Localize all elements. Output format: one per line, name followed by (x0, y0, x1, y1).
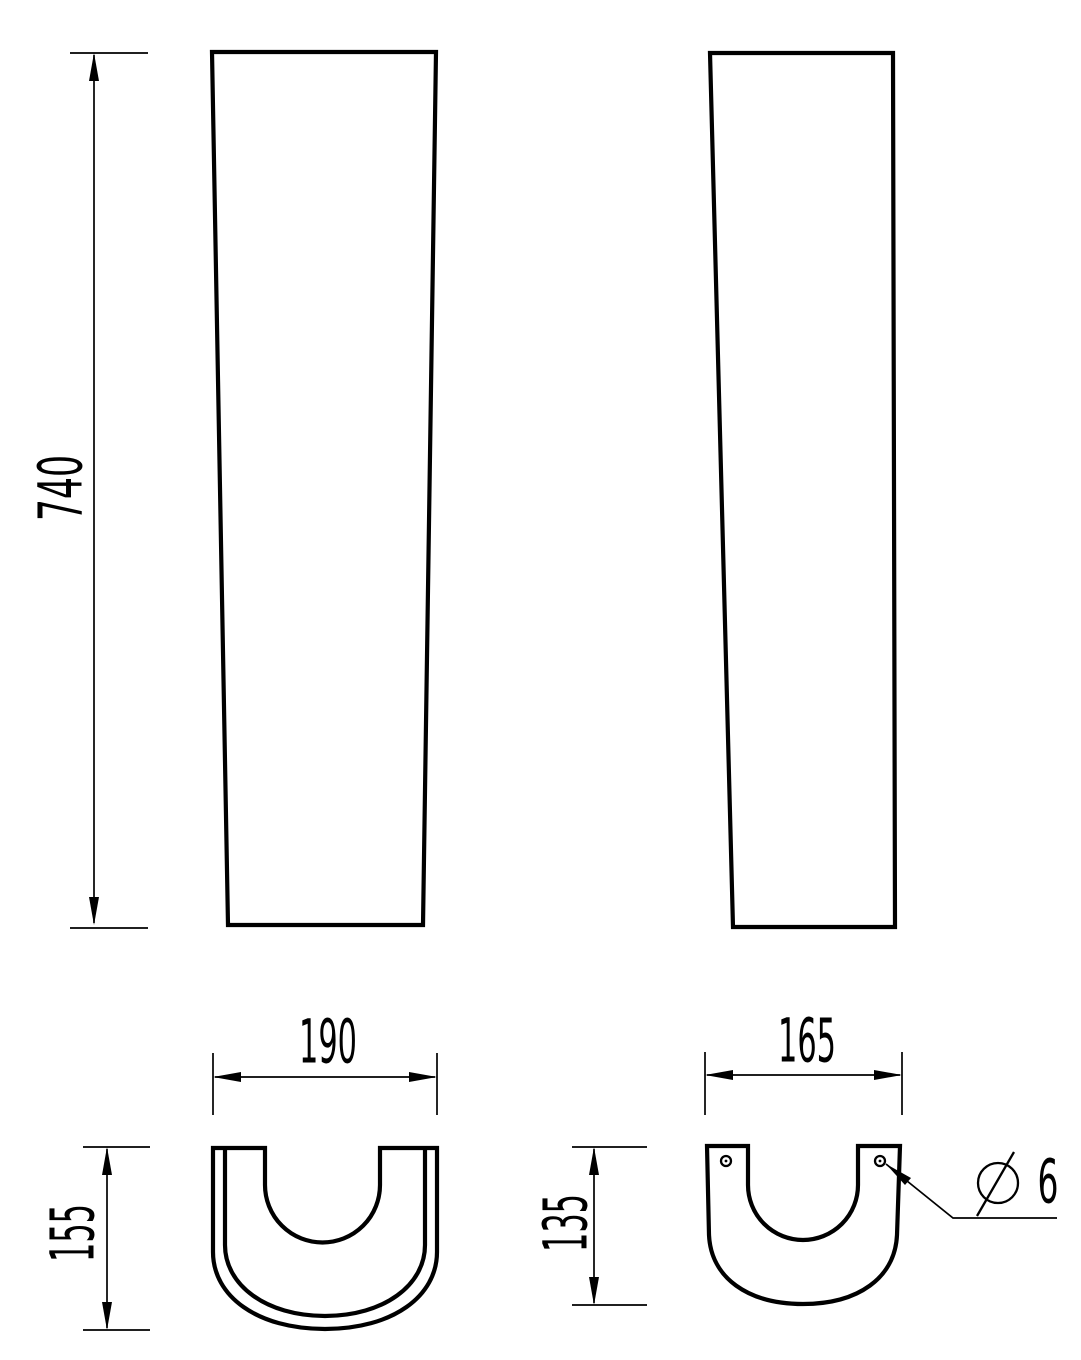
fixing-hole-left-center (725, 1160, 728, 1163)
pedestal-side-section-view (707, 1146, 900, 1304)
arrowhead-down (589, 1277, 599, 1305)
diameter-symbol-circle (978, 1163, 1018, 1203)
arrowhead-up (102, 1147, 112, 1175)
diameter-symbol-icon (977, 1152, 1018, 1216)
pedestal-side-elevation (710, 53, 895, 927)
height-dimension: 740 (26, 53, 149, 928)
arrowhead-left (705, 1070, 733, 1080)
pedestal-technical-drawing: 740 190 155 (0, 0, 1081, 1360)
hole-diameter-label: 6 (1038, 1147, 1059, 1218)
arrowhead-left (213, 1072, 241, 1082)
arrowhead-up (89, 53, 99, 81)
arrowhead-down (89, 897, 99, 925)
front-section-outer-outline (213, 1148, 437, 1329)
pedestal-front-elevation (212, 52, 436, 925)
leader-line (886, 1164, 1057, 1218)
height-dimension-label: 740 (26, 455, 97, 521)
hole-diameter-callout: 6 (886, 1147, 1059, 1219)
front-width-dimension: 190 (213, 1007, 437, 1116)
side-depth-dimension: 135 (531, 1147, 648, 1305)
front-depth-dimension-label: 155 (38, 1204, 109, 1262)
side-section-outer-outline (707, 1146, 900, 1304)
diameter-symbol-slash (977, 1152, 1014, 1216)
pedestal-front-section-view (213, 1148, 437, 1329)
fixing-hole-right-center (879, 1160, 882, 1163)
side-width-dimension: 165 (705, 1006, 902, 1116)
arrowhead-right (874, 1070, 902, 1080)
pedestal-front-outline (212, 52, 436, 925)
arrowhead-up (589, 1147, 599, 1175)
side-width-dimension-label: 165 (778, 1006, 836, 1077)
front-width-dimension-label: 190 (299, 1007, 357, 1078)
front-depth-dimension: 155 (38, 1147, 151, 1330)
arrowhead-down (102, 1302, 112, 1330)
arrowhead-right (409, 1072, 437, 1082)
technical-drawing-svg: 740 190 155 (0, 0, 1081, 1360)
side-depth-dimension-label: 135 (531, 1194, 602, 1252)
pedestal-side-outline (710, 53, 895, 927)
